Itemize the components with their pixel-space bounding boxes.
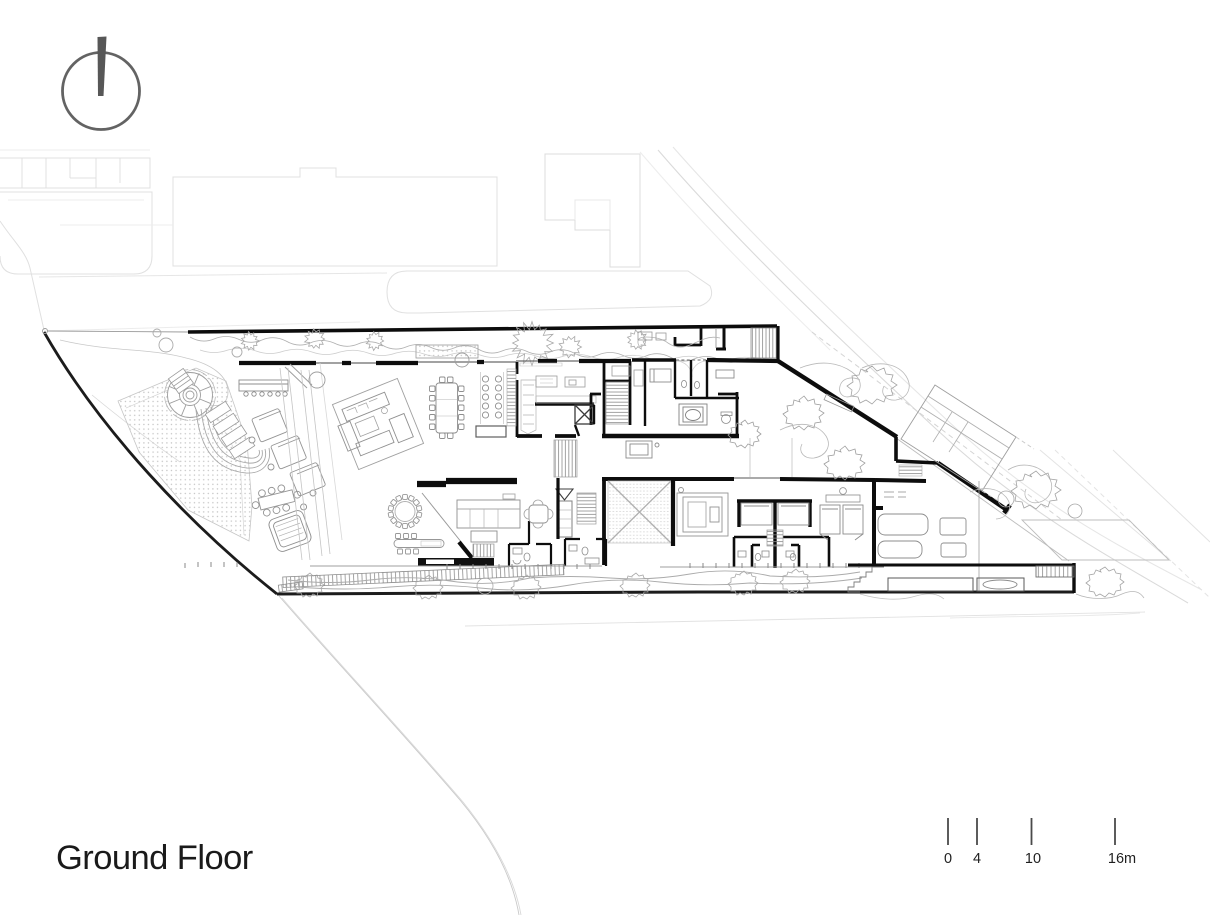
svg-text:4: 4 [973, 851, 981, 867]
svg-text:0: 0 [944, 851, 952, 867]
svg-text:10: 10 [1025, 851, 1041, 867]
svg-text:16m: 16m [1108, 851, 1136, 867]
svg-text:Ground Floor: Ground Floor [56, 839, 253, 877]
